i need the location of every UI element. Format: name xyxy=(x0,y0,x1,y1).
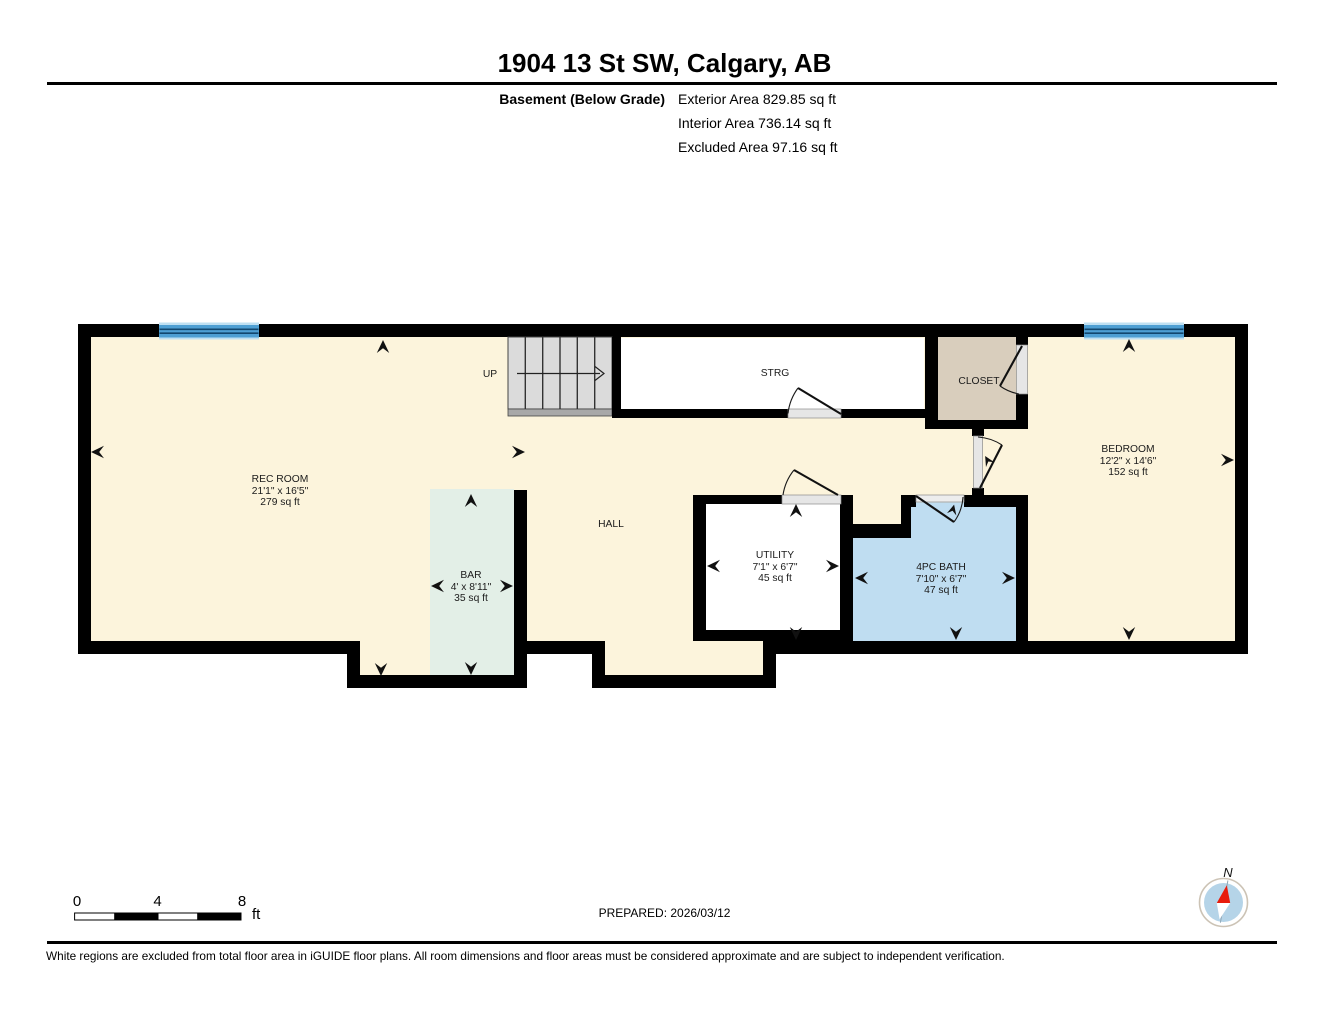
svg-text:4PC BATH: 4PC BATH xyxy=(916,562,966,573)
svg-text:7'1" x 6'7": 7'1" x 6'7" xyxy=(752,562,797,573)
svg-text:UP: UP xyxy=(483,369,497,380)
svg-text:21'1" x 16'5": 21'1" x 16'5" xyxy=(252,486,309,497)
svg-text:REC ROOM: REC ROOM xyxy=(252,474,309,485)
svg-text:HALL: HALL xyxy=(598,519,624,530)
svg-text:CLOSET: CLOSET xyxy=(958,376,1000,387)
svg-text:4' x 8'11": 4' x 8'11" xyxy=(451,582,492,593)
svg-text:279 sq ft: 279 sq ft xyxy=(260,497,300,508)
svg-text:N: N xyxy=(1223,865,1233,880)
svg-text:47 sq ft: 47 sq ft xyxy=(924,585,958,596)
svg-text:BEDROOM: BEDROOM xyxy=(1101,444,1154,455)
svg-text:12'2" x 14'6": 12'2" x 14'6" xyxy=(1100,456,1157,467)
svg-text:7'10" x 6'7": 7'10" x 6'7" xyxy=(916,574,967,585)
svg-text:45 sq ft: 45 sq ft xyxy=(758,573,792,584)
svg-text:BAR: BAR xyxy=(460,570,481,581)
svg-text:35 sq ft: 35 sq ft xyxy=(454,593,488,604)
svg-text:152 sq ft: 152 sq ft xyxy=(1108,467,1148,478)
svg-text:UTILITY: UTILITY xyxy=(756,550,794,561)
svg-text:STRG: STRG xyxy=(761,368,790,379)
